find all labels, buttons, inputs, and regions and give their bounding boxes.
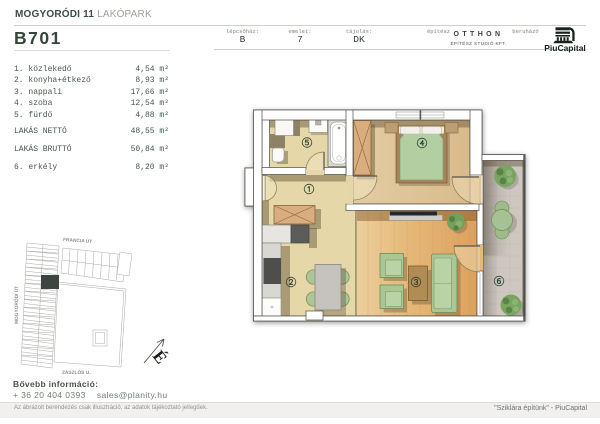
svg-text:É: É: [149, 347, 171, 368]
svg-text:FRANCIA ÚT: FRANCIA ÚT: [63, 236, 93, 245]
svg-text:MOGYORÓDI ÚT: MOGYORÓDI ÚT: [13, 286, 20, 324]
svg-text:ZÁSZLÓS U.: ZÁSZLÓS U.: [62, 369, 91, 376]
